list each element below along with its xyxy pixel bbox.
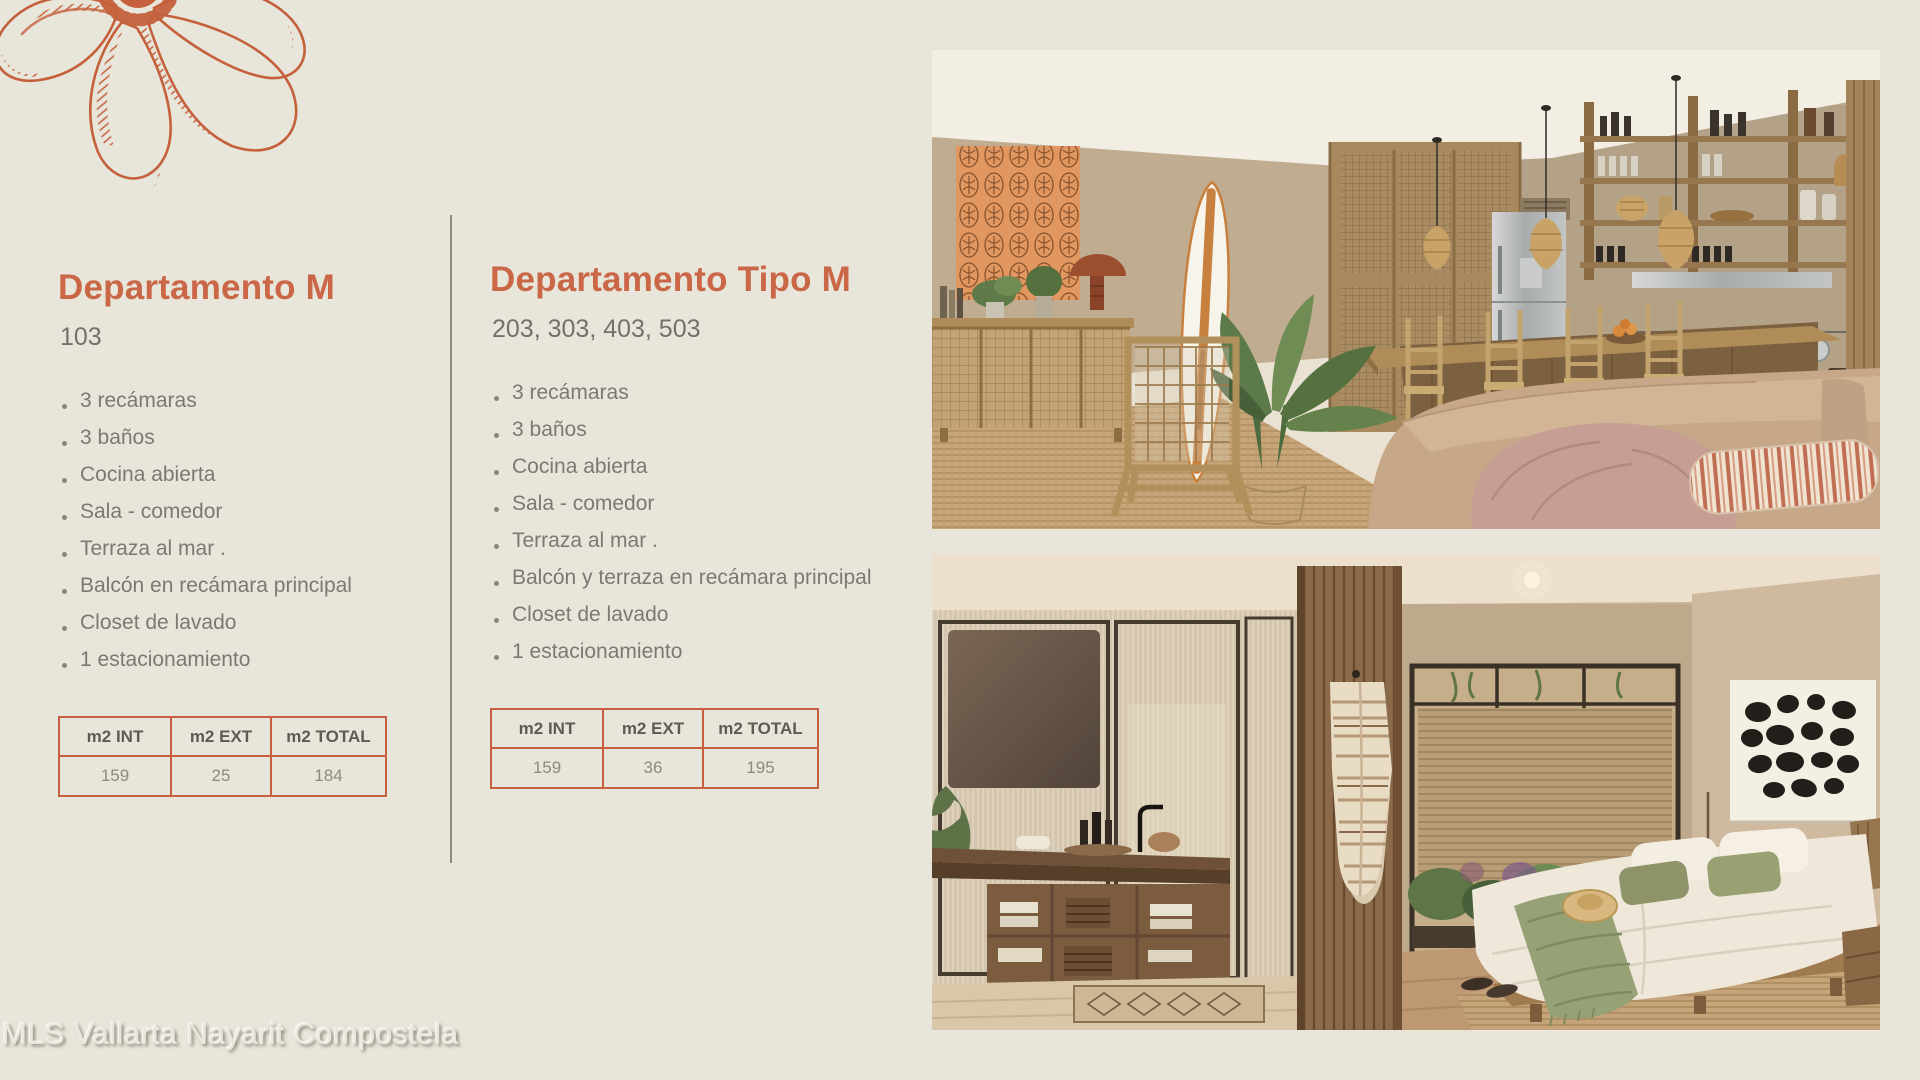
mirror [948,630,1100,788]
feature-item: Cocina abierta [492,455,910,492]
brochure-page: Departamento M 103 3 recámaras 3 baños C… [0,0,1920,1080]
watermark-text: MLS Vallarta Nayarit Compostela [2,1018,459,1052]
orange-wall-art [956,146,1080,300]
bullet-icon [62,626,67,631]
living-kitchen-photo [932,50,1880,529]
feature-item: Closet de lavado [492,603,910,640]
table-cell: 159 [59,756,171,796]
feature-item: Sala - comedor [60,500,398,537]
bullet-icon [494,433,499,438]
bullet-icon [62,441,67,446]
feature-item: Cocina abierta [60,463,398,500]
table-cell: 195 [703,748,818,788]
bullet-icon [494,581,499,586]
range-hood [1632,272,1832,288]
bullet-icon [494,507,499,512]
straw-hat [1563,890,1617,922]
table-cell: 25 [171,756,271,796]
bullet-icon [62,552,67,557]
bullet-icon [62,589,67,594]
feature-item: Terraza al mar . [60,537,398,574]
table-header: m2 TOTAL [703,709,818,748]
unit-tipo-m-area-table: m2 INT m2 EXT m2 TOTAL 159 36 195 [490,708,819,789]
unit-m-feature-list: 3 recámaras 3 baños Cocina abierta Sala … [58,389,398,685]
wood-slat-column [1297,566,1402,1030]
bullet-icon [494,544,499,549]
bullet-icon [62,478,67,483]
bathroom-bedroom-photo [932,554,1880,1030]
column-divider [450,215,452,863]
bullet-icon [494,618,499,623]
feature-item: 3 recámaras [492,381,910,418]
unit-tipo-m-numbers: 203, 303, 403, 503 [492,315,910,344]
table-cell: 184 [271,756,386,796]
table-header: m2 INT [59,717,171,756]
brand-flower-logo-icon [0,0,336,224]
nightstand [1842,926,1880,1006]
bullet-icon [494,396,499,401]
table-header: m2 EXT [171,717,271,756]
fruit-bowl [1606,332,1646,344]
unit-m-section: Departamento M 103 3 recámaras 3 baños C… [58,268,398,797]
table-header: m2 EXT [603,709,703,748]
bullet-icon [62,663,67,668]
feature-item: 3 recámaras [60,389,398,426]
feature-item: 3 baños [492,418,910,455]
unit-tipo-m-section: Departamento Tipo M 203, 303, 403, 503 3… [490,260,910,789]
unit-tipo-m-feature-list: 3 recámaras 3 baños Cocina abierta Sala … [490,381,910,677]
feature-item: Balcón y terraza en recámara principal [492,566,910,603]
abstract-art [1730,680,1876,822]
unit-m-numbers: 103 [60,323,398,352]
feature-item: 1 estacionamiento [492,640,910,677]
bullet-icon [494,655,499,660]
feature-item: 3 baños [60,426,398,463]
table-header: m2 INT [491,709,603,748]
feature-item: Closet de lavado [60,611,398,648]
table-header: m2 TOTAL [271,717,386,756]
feature-item: 1 estacionamiento [60,648,398,685]
runner-rug [1074,986,1264,1022]
unit-m-area-table: m2 INT m2 EXT m2 TOTAL 159 25 184 [58,716,387,797]
table-cell: 159 [491,748,603,788]
feature-item: Balcón en recámara principal [60,574,398,611]
feature-item: Sala - comedor [492,492,910,529]
unit-tipo-m-title: Departamento Tipo M [490,260,910,300]
bullet-icon [62,404,67,409]
bullet-icon [494,470,499,475]
feature-item: Terraza al mar . [492,529,910,566]
unit-m-title: Departamento M [58,268,398,308]
bullet-icon [62,515,67,520]
table-cell: 36 [603,748,703,788]
